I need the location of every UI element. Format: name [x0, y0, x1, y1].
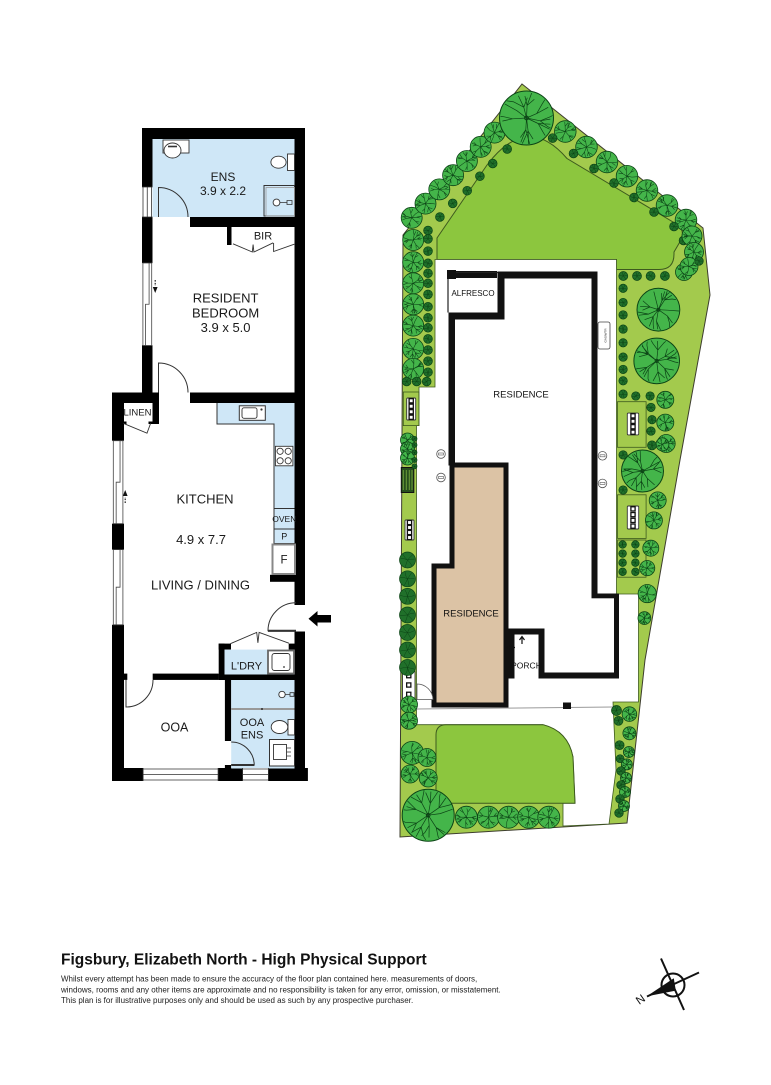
- svg-text:LIVING / DINING: LIVING / DINING: [151, 578, 250, 593]
- svg-text:BEDROOM: BEDROOM: [192, 306, 259, 321]
- svg-text:RESIDENCE: RESIDENCE: [443, 609, 498, 620]
- svg-text:OOA: OOA: [240, 717, 265, 729]
- svg-text:OOA: OOA: [161, 721, 189, 735]
- svg-text:PORCH: PORCH: [511, 661, 542, 671]
- svg-text:4.9 x 7.7: 4.9 x 7.7: [176, 532, 226, 547]
- svg-text:ENS: ENS: [211, 170, 236, 184]
- svg-text:3.9 x 2.2: 3.9 x 2.2: [200, 184, 246, 198]
- svg-text:GAS/WTR: GAS/WTR: [604, 328, 608, 343]
- svg-text:P: P: [281, 532, 287, 542]
- svg-text:F: F: [280, 555, 287, 567]
- svg-text:OVEN: OVEN: [272, 514, 296, 524]
- svg-text:KITCHEN: KITCHEN: [176, 492, 233, 507]
- svg-text:ENS: ENS: [241, 730, 264, 742]
- svg-text:RESIDENT: RESIDENT: [193, 291, 259, 306]
- svg-text:windows, rooms and any other i: windows, rooms and any other items are a…: [60, 985, 501, 994]
- svg-text:This plan is for illustrative: This plan is for illustrative purposes o…: [61, 996, 413, 1005]
- svg-text:3.9 x 5.0: 3.9 x 5.0: [201, 320, 251, 335]
- svg-text:ALFRESCO: ALFRESCO: [451, 289, 494, 298]
- svg-text:LINEN: LINEN: [124, 408, 152, 419]
- svg-text:BIR: BIR: [254, 231, 272, 243]
- svg-text:RESIDENCE: RESIDENCE: [493, 390, 548, 401]
- svg-text:Whilst every attempt has been: Whilst every attempt has been made to en…: [61, 975, 477, 984]
- svg-text:L'DRY: L'DRY: [231, 661, 263, 673]
- svg-text:Figsbury, Elizabeth North - Hi: Figsbury, Elizabeth North - High Physica…: [61, 952, 427, 969]
